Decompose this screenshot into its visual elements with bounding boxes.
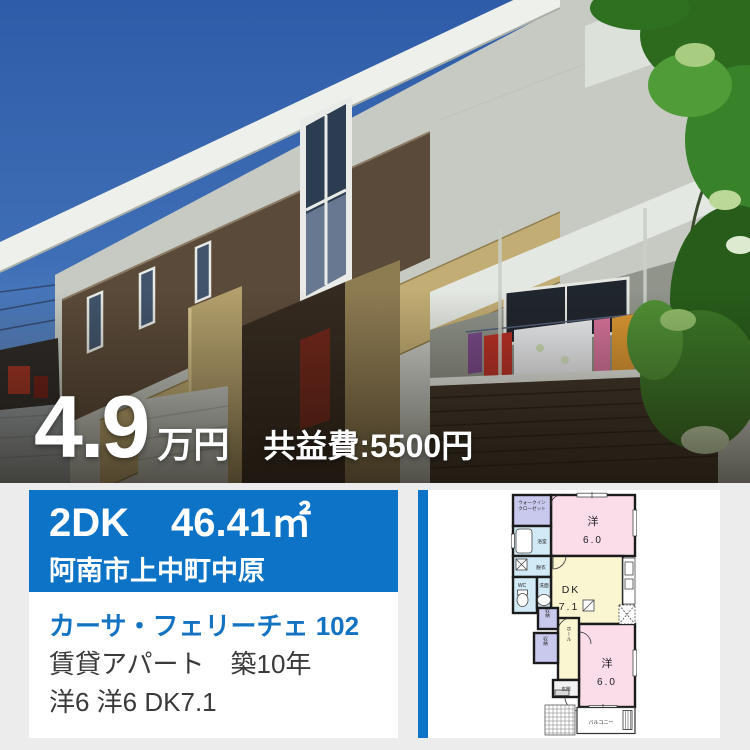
- summary-card[interactable]: 2DK46.41㎡ 阿南市上中町中原 カーサ・フェリーチェ 102 賃貸アパート…: [29, 490, 398, 738]
- walk-in-closet-label2: クローゼット: [518, 505, 546, 512]
- western1-size: 6.0: [583, 535, 603, 546]
- hall-label: ホール: [566, 626, 572, 641]
- rent-price: 4.9: [34, 383, 147, 471]
- floor-area: 46.41㎡: [171, 501, 311, 545]
- property-photo: 4.9 万円 共益費:5500円: [0, 0, 750, 483]
- dk-label: DK: [562, 584, 581, 596]
- summary-details: カーサ・フェリーチェ 102 賃貸アパート 築10年 洋6 洋6 DK7.1: [29, 592, 398, 721]
- washstand-label: 洗面: [539, 582, 549, 589]
- western2-label: 洋: [602, 656, 613, 670]
- toilet-label: WC: [518, 583, 527, 589]
- info-row: 2DK46.41㎡ 阿南市上中町中原 カーサ・フェリーチェ 102 賃貸アパート…: [0, 483, 750, 750]
- layout-type: 2DK: [49, 501, 129, 545]
- property-listing-card[interactable]: 4.9 万円 共益費:5500円 2DK46.41㎡ 阿南市上中町中原 カーサ・…: [0, 0, 750, 750]
- maintenance-fee: 共益費:5500円: [263, 421, 473, 467]
- western1-label: 洋: [588, 514, 599, 528]
- balcony-label: バルコニー: [589, 720, 614, 726]
- toilet-bowl: [517, 593, 528, 606]
- walk-in-closet-label1: ウォークイン: [518, 499, 546, 506]
- summary-header: 2DK46.41㎡ 阿南市上中町中原: [29, 490, 398, 592]
- bathtub: [516, 529, 532, 553]
- storage1-label: 収納: [545, 607, 551, 619]
- storage2-label: 収納: [543, 635, 549, 647]
- floorplan-panel[interactable]: ウォークイン クローゼット 浴室 脱衣 WC 洗面 洋 6.0 DK 7.1 収…: [418, 490, 720, 738]
- price-overlay: 4.9 万円 共益費:5500円: [34, 383, 473, 471]
- dressing-label: 脱衣: [536, 564, 546, 571]
- bath-label: 浴室: [537, 538, 547, 545]
- entrance-label: 玄関: [561, 685, 571, 692]
- property-type-age: 賃貸アパート 築10年: [49, 645, 398, 683]
- tall-window: [300, 96, 352, 306]
- floorplan-image: ウォークイン クローゼット 浴室 脱衣 WC 洗面 洋 6.0 DK 7.1 収…: [511, 492, 637, 737]
- property-name-link[interactable]: カーサ・フェリーチェ 102: [49, 607, 398, 645]
- wash-basin: [538, 594, 551, 605]
- western2-size: 6.0: [597, 677, 617, 688]
- dk-size: 7.1: [559, 601, 580, 613]
- property-address: 阿南市上中町中原: [49, 549, 398, 588]
- room-breakdown: 洋6 洋6 DK7.1: [49, 683, 398, 721]
- porch-hatch: [545, 705, 575, 735]
- layout-and-area: 2DK46.41㎡: [49, 501, 398, 546]
- rent-price-unit: 万円: [157, 416, 229, 468]
